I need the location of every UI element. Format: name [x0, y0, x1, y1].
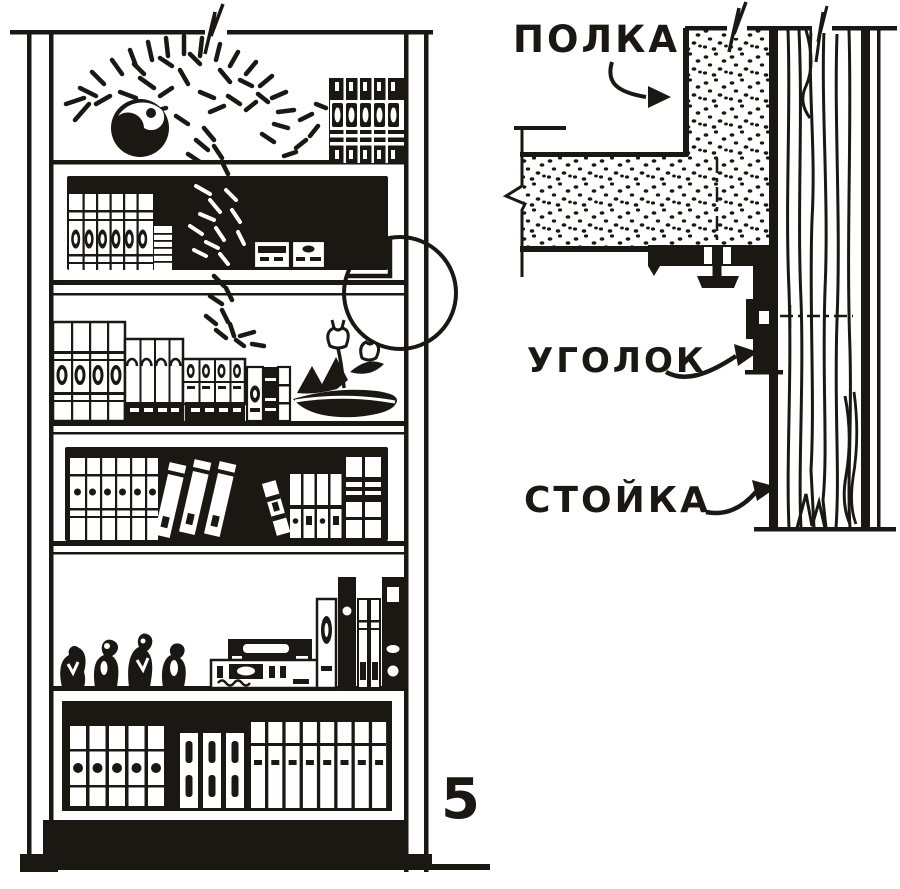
section1-hanging-plant [66, 36, 405, 174]
figure-number: 5 [441, 767, 480, 832]
small-flat-books [254, 241, 325, 268]
bookshelf-elevation: 5 [10, 4, 490, 872]
left-post-inner-line [49, 30, 54, 864]
left-post-outer-line [27, 30, 32, 862]
leaning-stack [247, 367, 290, 421]
post-bottom-line [754, 527, 896, 532]
section4-dark-niche [65, 447, 388, 541]
joint-detail-view: ПОЛКА УГОЛОК СТОЙКА [506, 2, 897, 532]
figurines [60, 633, 186, 687]
shelf-leader-arrow [610, 62, 646, 97]
shelf-cross-section [506, 28, 770, 277]
flat-book-stacks [211, 639, 321, 688]
upright-leader-arrow [706, 492, 756, 513]
plinth [43, 820, 405, 870]
section5-figurines-and-books [60, 577, 404, 688]
pot-dot [146, 108, 156, 118]
magazine-illustration-page: 5 [0, 0, 900, 889]
break-mark-left [506, 128, 525, 277]
label-shelf: ПОЛКА [513, 18, 680, 61]
right-post-outer-line [424, 30, 429, 872]
potted-flower [293, 320, 397, 417]
wood-grain [788, 30, 857, 528]
upright-books [317, 577, 404, 688]
figure-illustration: 5 [0, 0, 900, 889]
section6-books [62, 701, 392, 811]
upright-post [754, 26, 896, 532]
section2-dark-niche [67, 176, 388, 346]
shelf-arrowhead [648, 86, 671, 108]
books-top-right [329, 78, 405, 163]
floor-line [396, 864, 490, 870]
label-upright: СТОЙКА [524, 479, 711, 521]
plant-foliage-scribble [66, 36, 326, 174]
